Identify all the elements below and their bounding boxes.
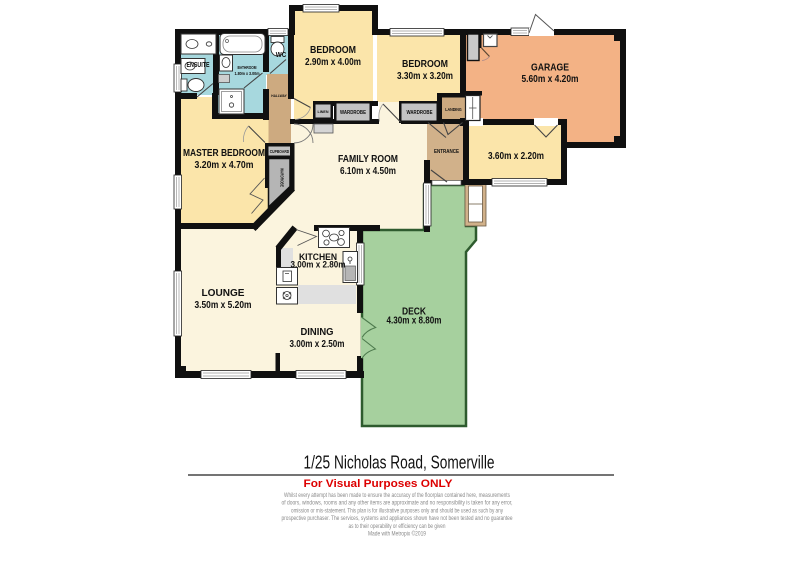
svg-text:LINEN: LINEN [318,110,330,114]
svg-text:3.20m x 4.70m: 3.20m x 4.70m [195,160,254,171]
svg-text:BEDROOM: BEDROOM [310,44,356,56]
svg-text:CUPBOARD: CUPBOARD [270,149,290,154]
svg-text:LANDING: LANDING [445,107,462,112]
svg-text:as to their operability or eff: as to their operability or efficiency ca… [349,523,446,530]
svg-text:omission or mis-statement. Thi: omission or mis-statement. This plan is … [291,507,503,514]
svg-text:LOUNGE: LOUNGE [202,287,245,299]
svg-text:1/25 Nicholas Road, Somerville: 1/25 Nicholas Road, Somerville [304,452,495,473]
svg-text:ENTRANCE: ENTRANCE [434,149,459,155]
svg-text:For Visual Purposes ONLY: For Visual Purposes ONLY [304,478,454,490]
svg-text:Made with Metropix ©2019: Made with Metropix ©2019 [368,530,426,538]
svg-text:3.30m x 3.20m: 3.30m x 3.20m [397,71,453,82]
svg-text:BATHROOM: BATHROOM [238,65,257,71]
svg-text:3.00m x 2.80m: 3.00m x 2.80m [291,260,346,270]
svg-text:6.10m x 4.50m: 6.10m x 4.50m [340,166,396,177]
svg-text:3.50m x 5.20m: 3.50m x 5.20m [195,300,252,311]
svg-text:DINING: DINING [301,327,334,338]
svg-text:2.90m x 4.00m: 2.90m x 4.00m [305,57,361,68]
svg-text:4.30m x 8.80m: 4.30m x 8.80m [387,316,442,327]
svg-text:WARDROBE: WARDROBE [407,110,433,116]
svg-text:WARDROBE: WARDROBE [340,110,366,116]
svg-text:ENSUITE: ENSUITE [187,60,210,69]
svg-text:HALLWAY: HALLWAY [271,93,287,98]
svg-text:Whilst every attempt has been: Whilst every attempt has been made to en… [284,492,510,499]
svg-text:1.80m x 3.00m: 1.80m x 3.00m [235,71,260,77]
svg-text:3.00m x 2.50m: 3.00m x 2.50m [290,339,345,350]
svg-text:FAMILY ROOM: FAMILY ROOM [338,153,398,165]
svg-text:WARDROBE: WARDROBE [280,168,285,187]
svg-text:WC: WC [276,50,287,59]
svg-text:BEDROOM: BEDROOM [402,58,448,70]
svg-text:MASTER BEDROOM: MASTER BEDROOM [183,147,265,159]
svg-text:GARAGE: GARAGE [531,62,569,74]
svg-text:prospective purchaser. The ser: prospective purchaser. The services, sys… [282,515,513,522]
svg-text:5.60m x 4.20m: 5.60m x 4.20m [522,74,579,85]
svg-text:3.60m x 2.20m: 3.60m x 2.20m [488,151,544,162]
svg-text:of doors, windows, rooms and a: of doors, windows, rooms and any other i… [282,500,513,507]
